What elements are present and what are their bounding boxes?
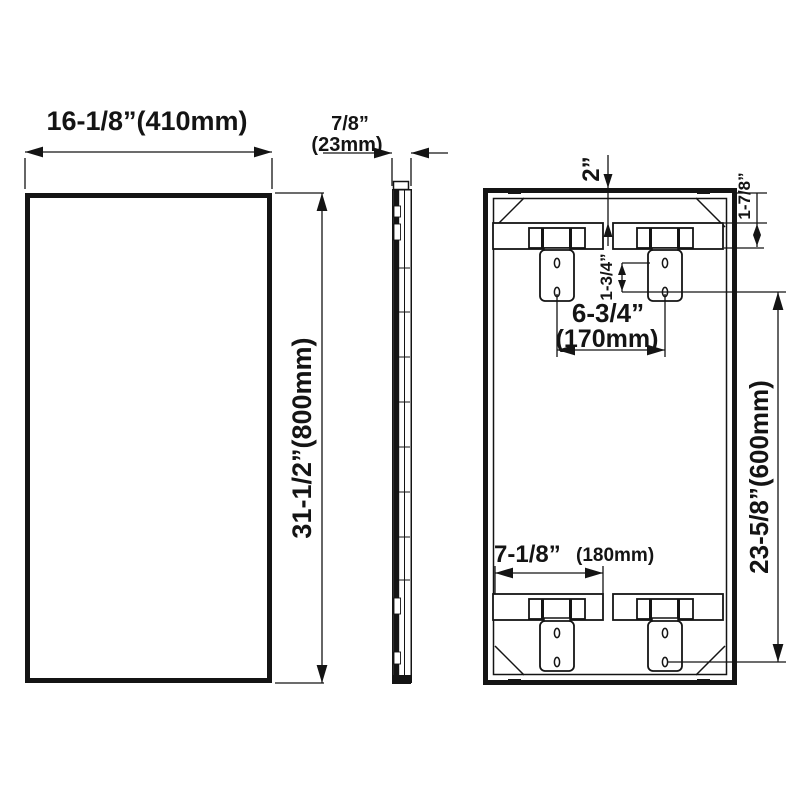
technical-drawing-canvas: 16-1/8”(410mm) 31-1/2”(800mm) (0, 0, 800, 800)
back-view: 2” 1-7/8” 1-3/4” 6-3/4” (170mm (486, 155, 787, 685)
side-view-bottom-cap (392, 675, 411, 684)
bottom-rail-width-label-mm: (180mm) (576, 545, 654, 566)
front-view: 16-1/8”(410mm) 31-1/2”(800mm) (25, 106, 324, 683)
side-thickness-dimension: 7/8” (23mm) (311, 113, 448, 186)
front-height-dimension: 31-1/2”(800mm) (275, 193, 324, 683)
rail-height-label: 1-7/8” (735, 172, 754, 219)
side-view-top-cap (394, 182, 409, 190)
side-view: 7/8” (23mm) (311, 113, 448, 684)
top-bracket-span-label-in: 6-3/4” (572, 298, 644, 328)
mirror-dimension-diagram: 16-1/8”(410mm) 31-1/2”(800mm) (0, 0, 800, 800)
top-offset-label: 2” (578, 156, 605, 181)
front-width-dimension: 16-1/8”(410mm) (25, 106, 272, 189)
bracket-vertical-span-label: 23-5/8”(600mm) (744, 380, 774, 574)
side-thickness-label-in: 7/8” (331, 113, 369, 135)
hole-spacing-label: 1-3/4” (597, 253, 616, 300)
front-height-label: 31-1/2”(800mm) (287, 337, 317, 538)
front-view-mirror-outline (28, 196, 270, 681)
front-width-label: 16-1/8”(410mm) (46, 106, 247, 136)
top-bracket-span-label-mm: (170mm) (556, 325, 659, 353)
bottom-rail-width-label-in: 7-1/8” (494, 541, 561, 568)
